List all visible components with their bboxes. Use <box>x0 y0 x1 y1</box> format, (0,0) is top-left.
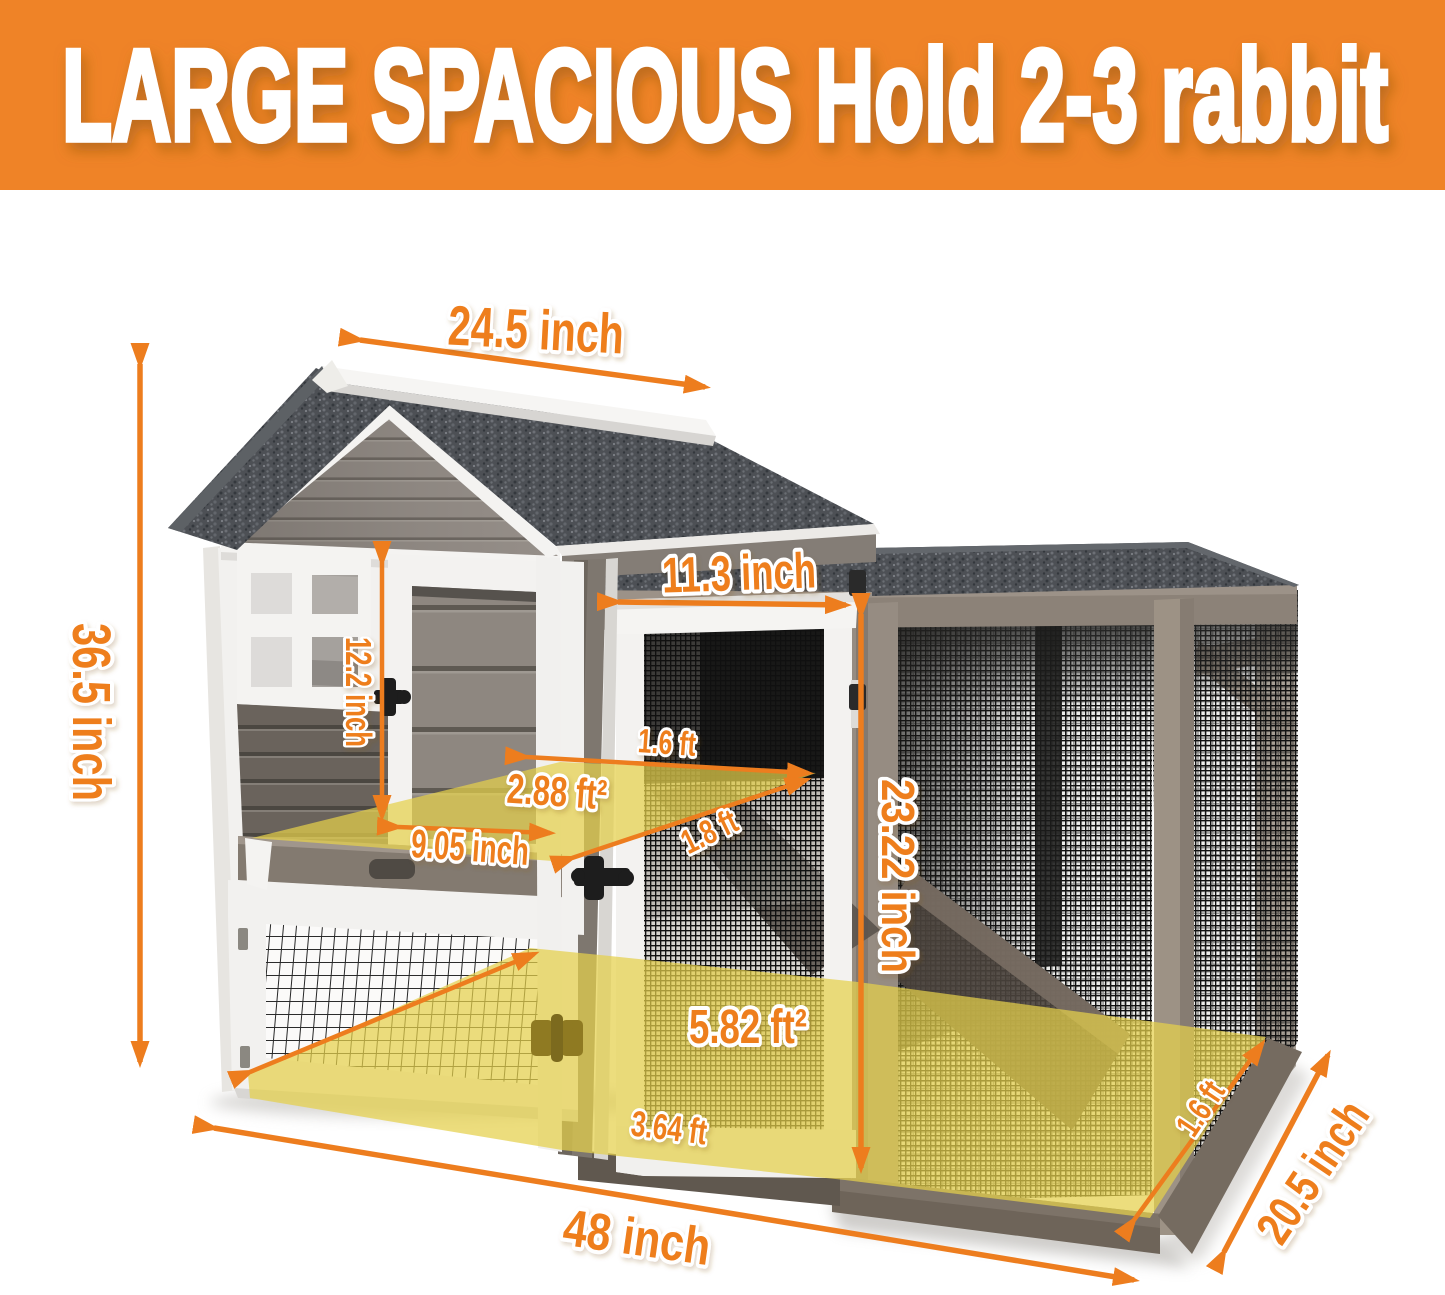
svg-text:36.5 inch: 36.5 inch <box>61 623 121 801</box>
svg-text:24.5 inch: 24.5 inch <box>446 293 625 365</box>
svg-text:9.05 inch: 9.05 inch <box>410 822 531 874</box>
svg-text:23.22 inch: 23.22 inch <box>872 779 924 973</box>
svg-text:LARGE SPACIOUS Hold 2-3 rabbit: LARGE SPACIOUS Hold 2-3 rabbit <box>62 22 1388 168</box>
svg-text:5.82 ft²: 5.82 ft² <box>689 1001 807 1054</box>
svg-text:2.88 ft²: 2.88 ft² <box>506 765 609 819</box>
svg-text:12.2 inch: 12.2 inch <box>338 637 379 747</box>
svg-text:1.6 ft: 1.6 ft <box>637 722 698 764</box>
svg-text:11.3 inch: 11.3 inch <box>661 542 817 603</box>
